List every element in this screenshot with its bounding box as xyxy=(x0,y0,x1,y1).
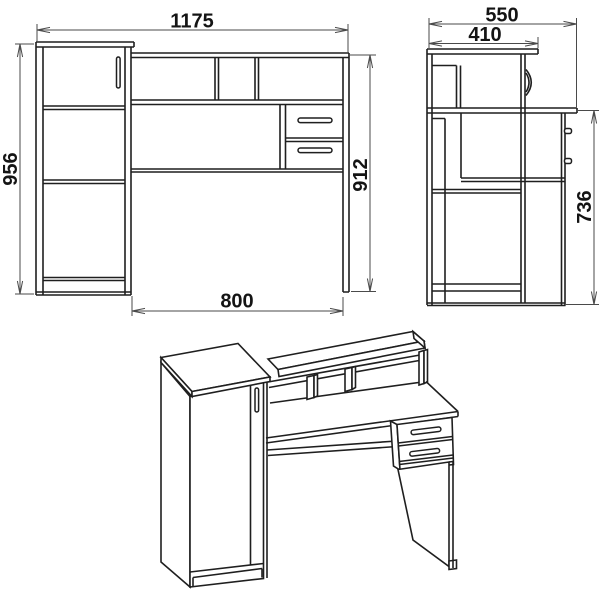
iso-cabinet-front xyxy=(190,383,264,588)
iso-leg-panel xyxy=(398,462,449,567)
dim-label-kneehole-width: 800 xyxy=(220,291,253,313)
blueprint-canvas: 1175 956 912 800 550 410 xyxy=(0,0,600,600)
front-drawer-handle-top xyxy=(298,118,332,123)
isometric-view-drawing xyxy=(161,332,458,588)
front-view-drawing: 1175 956 912 800 xyxy=(0,11,376,317)
side-view-drawing: 550 410 736 xyxy=(427,5,599,306)
front-drawer-handle-bottom xyxy=(298,148,332,153)
dim-label-shelf-depth: 410 xyxy=(468,24,501,46)
iso-divider-2 xyxy=(345,368,352,392)
side-drawer-handle-top xyxy=(565,129,572,134)
dim-label-desk-height: 912 xyxy=(350,158,372,191)
dim-label-worktop-height: 736 xyxy=(574,190,596,223)
front-cabinet-door-handle xyxy=(117,57,121,88)
iso-modesty-panel xyxy=(267,441,397,456)
side-drawer-handle-bottom xyxy=(565,159,572,164)
front-dim-kneehole: 800 xyxy=(132,291,343,317)
side-door-handle xyxy=(526,70,531,96)
iso-divider-1-side xyxy=(314,375,318,398)
side-dim-depth: 550 xyxy=(429,5,577,108)
iso-cabinet-door-handle xyxy=(255,388,259,412)
blueprint-page: 1175 956 912 800 550 410 xyxy=(0,0,600,600)
dim-label-cabinet-height: 956 xyxy=(0,152,22,185)
front-dim-desk-height: 912 xyxy=(350,55,376,292)
iso-divider-2-side xyxy=(352,367,356,390)
side-outline xyxy=(427,49,577,306)
front-dim-cabinet-height: 956 xyxy=(0,44,34,294)
iso-divider-1 xyxy=(307,376,314,400)
front-desk-outline xyxy=(131,53,349,292)
side-dim-shelf-depth: 410 xyxy=(429,24,538,49)
side-dim-worktop-height: 736 xyxy=(566,111,599,305)
iso-hutch-support-side xyxy=(424,350,428,384)
dim-label-front-width: 1175 xyxy=(170,11,213,33)
iso-cabinet-side xyxy=(161,363,190,588)
